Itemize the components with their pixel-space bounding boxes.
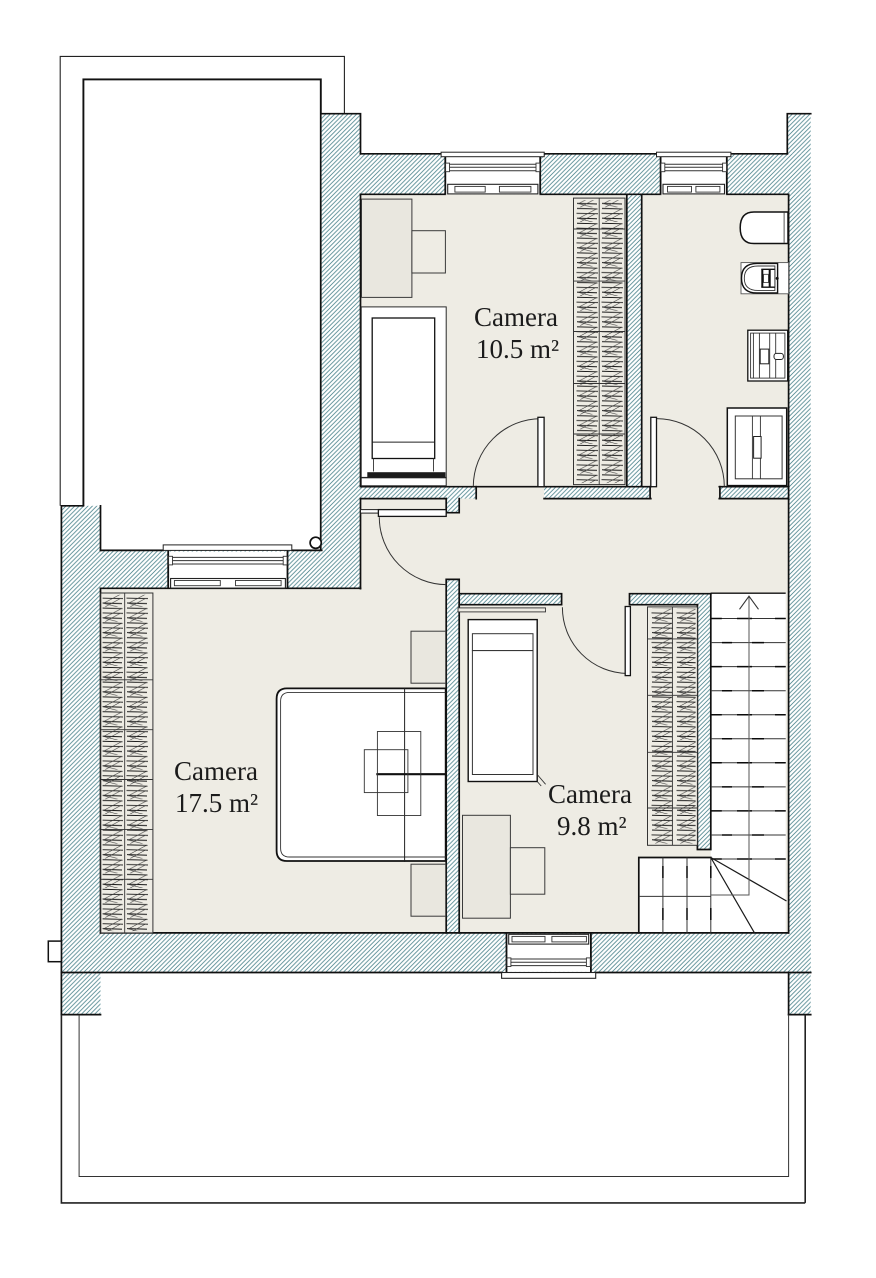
- svg-text:9.8 m²: 9.8 m²: [557, 811, 627, 841]
- svg-text:Camera: Camera: [548, 779, 632, 809]
- svg-text:Camera: Camera: [174, 756, 258, 786]
- svg-text:17.5 m²: 17.5 m²: [175, 788, 258, 818]
- svg-text:Camera: Camera: [474, 302, 558, 332]
- svg-text:10.5 m²: 10.5 m²: [476, 334, 559, 364]
